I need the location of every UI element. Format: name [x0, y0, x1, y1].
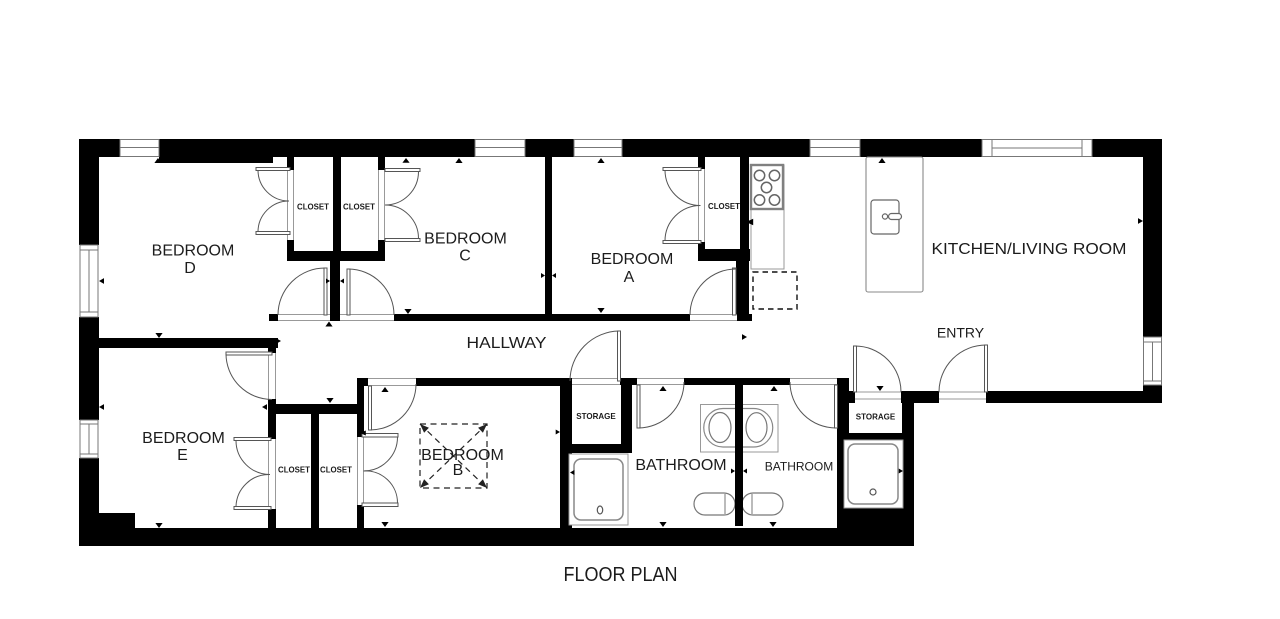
svg-text:FLOOR PLAN: FLOOR PLAN: [564, 564, 678, 586]
svg-text:BATHROOM: BATHROOM: [765, 460, 833, 474]
svg-text:BEDROOM: BEDROOM: [142, 430, 225, 447]
svg-text:STORAGE: STORAGE: [856, 412, 896, 422]
svg-text:BEDROOM: BEDROOM: [424, 231, 507, 248]
svg-text:BEDROOM: BEDROOM: [591, 251, 674, 268]
svg-text:KITCHEN/LIVING ROOM: KITCHEN/LIVING ROOM: [932, 241, 1127, 258]
svg-text:STORAGE: STORAGE: [576, 411, 616, 421]
svg-text:B: B: [453, 462, 464, 479]
svg-text:CLOSET: CLOSET: [343, 202, 376, 212]
svg-text:BEDROOM: BEDROOM: [152, 243, 235, 260]
svg-text:HALLWAY: HALLWAY: [467, 335, 547, 352]
svg-text:CLOSET: CLOSET: [297, 202, 330, 212]
svg-text:D: D: [184, 260, 196, 277]
svg-text:ENTRY: ENTRY: [937, 325, 985, 341]
svg-text:CLOSET: CLOSET: [708, 201, 741, 211]
svg-text:A: A: [624, 269, 635, 286]
svg-text:E: E: [177, 447, 188, 464]
svg-text:BATHROOM: BATHROOM: [635, 457, 726, 474]
svg-text:CLOSET: CLOSET: [278, 465, 311, 475]
svg-text:CLOSET: CLOSET: [320, 465, 353, 475]
svg-text:C: C: [459, 248, 471, 265]
